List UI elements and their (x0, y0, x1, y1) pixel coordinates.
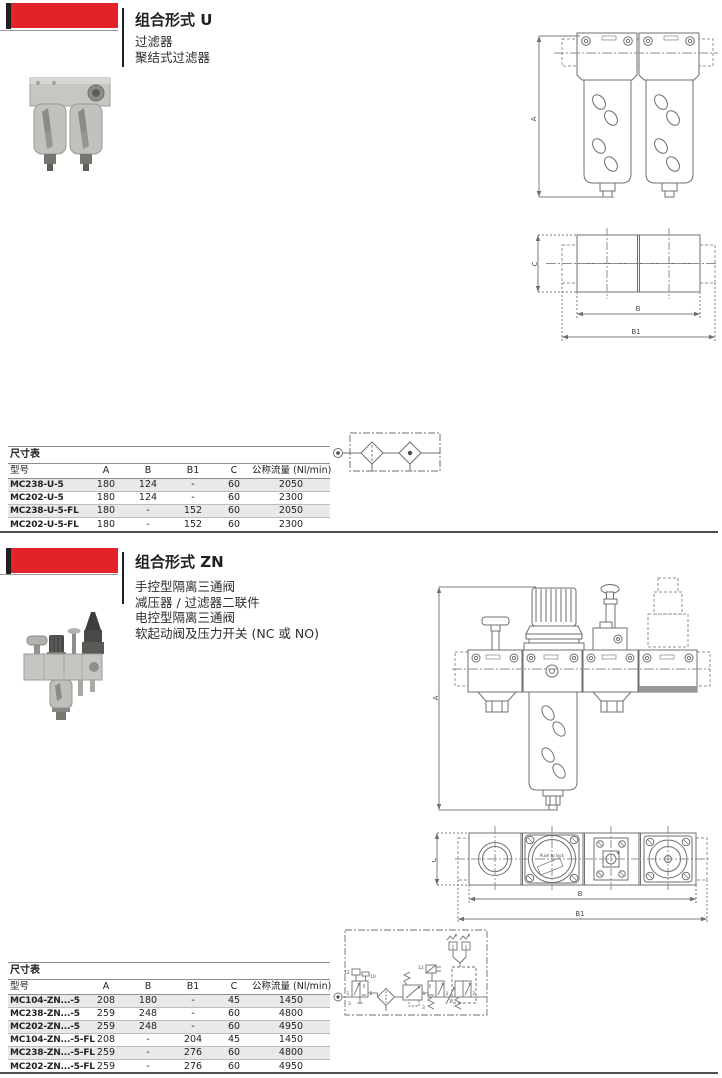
desc-line: 软起动阀及压力开关 (NC 或 NO) (135, 626, 319, 642)
b1-cell: - (170, 479, 216, 491)
section-u-description: 过滤器 聚结式过滤器 (135, 34, 210, 65)
flow-cell: 1450 (252, 995, 330, 1007)
section-zn-red-band (11, 548, 118, 573)
table-row: MC202-U-5 180 124 - 60 2300 (8, 492, 330, 505)
dim-label-a: A (530, 116, 538, 121)
col-header-flow: 公称流量 (Nl/min) (252, 464, 330, 478)
b1-cell: 276 (170, 1061, 216, 1073)
col-header-b: B (126, 980, 170, 994)
dim-label-b: B (578, 890, 583, 898)
dim-label-c: C (432, 857, 438, 862)
solenoid-pilot (593, 585, 627, 651)
port-label: 2 (446, 991, 449, 997)
b-cell: - (126, 505, 170, 517)
b1-cell: 204 (170, 1034, 216, 1046)
module-row (468, 650, 697, 692)
filter-unit (577, 33, 637, 197)
section-u-red-band (11, 3, 118, 28)
b-cell: - (126, 1047, 170, 1059)
filter-symbol (378, 989, 395, 1012)
dim-label-b1: B1 (575, 910, 584, 918)
port-label: 1 (347, 991, 350, 997)
c-cell: 60 (216, 1008, 252, 1020)
dimension-b: B (469, 885, 696, 903)
model-cell: MC104-ZN...-5-FL (8, 1034, 86, 1046)
table-row: MC202-U-5-FL 180 - 152 60 2300 (8, 518, 330, 531)
flow-cell: 4950 (252, 1021, 330, 1033)
b-cell: 248 (126, 1021, 170, 1033)
a-cell: 259 (86, 1061, 126, 1073)
table-header-row: 型号 A B B1 C 公称流量 (Nl/min) (8, 464, 330, 479)
section-u-divider (122, 8, 124, 67)
b-cell: 180 (126, 995, 170, 1007)
dimension-b: B (577, 292, 700, 318)
port-label: 2 (370, 991, 373, 997)
table-row: MC104-ZN...-5 208 180 - 45 1450 (8, 995, 330, 1008)
flow-cell: 2300 (252, 519, 330, 531)
table-header-row: 型号 A B B1 C 公称流量 (Nl/min) (8, 980, 330, 995)
b1-cell: - (170, 1008, 216, 1020)
table-row: MC202-ZN...-5 259 248 - 60 4950 (8, 1021, 330, 1034)
dimension-table-u: 尺寸表 型号 A B B1 C 公称流量 (Nl/min) MC238-U-5 … (8, 446, 330, 531)
a-cell: 259 (86, 1008, 126, 1020)
regulator-knob (524, 588, 584, 650)
schematic-zn: 12 10 1 2 3 12 1 2 3 (333, 925, 490, 1022)
table-row: MC238-U-5-FL 180 - 152 60 2050 (8, 505, 330, 518)
c-cell: 60 (216, 1047, 252, 1059)
flow-cell: 2300 (252, 492, 330, 504)
col-header-model: 型号 (8, 464, 86, 478)
section-u-bottom-rule (0, 531, 718, 533)
port-label: 10 (370, 974, 376, 980)
port-label: 3 (422, 1005, 425, 1011)
c-cell: 45 (216, 1034, 252, 1046)
c-cell: 45 (216, 995, 252, 1007)
model-cell: MC202-U-5 (8, 492, 86, 504)
soft-start-ghost (648, 578, 688, 647)
section-zn-band-underline (0, 574, 118, 575)
regulator-symbol (403, 972, 422, 1006)
b1-cell: 152 (170, 505, 216, 517)
bottom-fitting (478, 692, 516, 712)
coalescing-filter-symbol (399, 442, 421, 471)
table-row: MC238-U-5 180 124 - 60 2050 (8, 479, 330, 492)
port-label: 3 (348, 1001, 351, 1007)
flow-cell: 2050 (252, 505, 330, 517)
drawing-u-top-view: C B B1 (528, 226, 722, 352)
section-zn-description: 手控型隔离三通阀 减压器 / 过滤器二联件 电控型隔离三通阀 软起动阀及压力开关… (135, 579, 319, 641)
col-header-b1: B1 (170, 980, 216, 994)
col-header-c: C (216, 980, 252, 994)
desc-line: 手控型隔离三通阀 (135, 579, 319, 595)
col-header-a: A (86, 464, 126, 478)
a-cell: 180 (86, 505, 126, 517)
a-cell: 180 (86, 492, 126, 504)
col-header-b: B (126, 464, 170, 478)
section-zn-title: 组合形式 ZN (135, 551, 224, 572)
schematic-u (328, 422, 448, 480)
filter-symbol (361, 442, 383, 471)
model-cell: MC202-ZN...-5 (8, 1021, 86, 1033)
port-label: 1 (449, 999, 452, 1005)
dim-label-a: A (432, 695, 440, 700)
flow-cell: 1450 (252, 1034, 330, 1046)
section-zn-bottom-rule (0, 1072, 718, 1074)
port-label: 12 (344, 970, 350, 976)
desc-line: 减压器 / 过滤器二联件 (135, 595, 319, 611)
desc-line: 聚结式过滤器 (135, 50, 210, 66)
desc-line: 过滤器 (135, 34, 210, 50)
b-cell: - (126, 1061, 170, 1073)
model-cell: MC202-ZN...-5-FL (8, 1061, 86, 1073)
pressure-switch-symbols: 1 1 (447, 934, 470, 967)
b1-cell: - (170, 492, 216, 504)
a-cell: 208 (86, 1034, 126, 1046)
b1-cell: 276 (170, 1047, 216, 1059)
port-label: 1 (423, 991, 426, 997)
b-cell: - (126, 1034, 170, 1046)
flow-cell: 4950 (252, 1061, 330, 1073)
model-cell: MC238-U-5 (8, 479, 86, 491)
c-cell: 60 (216, 492, 252, 504)
flow-cell: 4800 (252, 1008, 330, 1020)
dim-label-b1: B1 (631, 328, 640, 336)
solenoid-valve-symbol: 12 1 2 3 (418, 965, 449, 1011)
a-cell: 208 (86, 995, 126, 1007)
table-row: MC104-ZN...-5-FL 208 - 204 45 1450 (8, 1034, 330, 1047)
filter-unit (639, 33, 699, 197)
product-photo-u (24, 70, 116, 178)
section-u-band-underline (0, 30, 118, 31)
table-caption: 尺寸表 (8, 962, 330, 980)
flow-cell: 2050 (252, 479, 330, 491)
col-header-flow: 公称流量 (Nl/min) (252, 980, 330, 994)
col-header-a: A (86, 980, 126, 994)
manual-valve-button (482, 617, 509, 650)
c-cell: 60 (216, 479, 252, 491)
manual-valve-symbol: 12 10 1 2 3 (344, 969, 376, 1007)
dim-label-b: B (636, 305, 641, 313)
a-cell: 180 (86, 519, 126, 531)
catalog-page: { "section_u": { "title": "组合形式 U", "des… (0, 0, 722, 1078)
model-cell: MC238-ZN...-5 (8, 1008, 86, 1020)
a-cell: 259 (86, 1021, 126, 1033)
model-cell: MC238-ZN...-5-FL (8, 1047, 86, 1059)
col-header-c: C (216, 464, 252, 478)
bottom-fitting (593, 692, 631, 712)
desc-line: 电控型隔离三通阀 (135, 610, 319, 626)
drawing-u-front-view: A (528, 20, 722, 222)
c-cell: 60 (216, 505, 252, 517)
section-zn-divider (122, 552, 124, 604)
b1-cell: - (170, 995, 216, 1007)
b-cell: - (126, 519, 170, 531)
a-cell: 259 (86, 1047, 126, 1059)
c-cell: 60 (216, 1061, 252, 1073)
port-label: 12 (418, 965, 424, 971)
model-cell: MC202-U-5-FL (8, 519, 86, 531)
table-caption: 尺寸表 (8, 446, 330, 464)
col-header-model: 型号 (8, 980, 86, 994)
photo-bowl-right (70, 104, 102, 171)
c-cell: 60 (216, 519, 252, 531)
b1-cell: - (170, 1021, 216, 1033)
port-label: 1 (452, 945, 455, 951)
soft-start-valve-symbol: 1 2 (446, 967, 476, 1009)
dim-label-c: C (531, 261, 539, 266)
b-cell: 248 (126, 1008, 170, 1020)
table-row: MC238-ZN...-5-FL 259 - 276 60 4800 (8, 1047, 330, 1060)
section-u-title: 组合形式 U (135, 9, 212, 30)
model-cell: MC238-U-5-FL (8, 505, 86, 517)
filter-bowl (529, 692, 577, 810)
drawing-zn-bottom-view: Push to lock C B (432, 824, 722, 926)
port-label: 1 (465, 945, 468, 951)
drawing-zn-front-view: A (432, 572, 722, 818)
port-label: 2 (473, 991, 476, 997)
table-row: MC238-ZN...-5 259 248 - 60 4800 (8, 1008, 330, 1021)
b-cell: 124 (126, 492, 170, 504)
col-header-b1: B1 (170, 464, 216, 478)
model-cell: MC104-ZN...-5 (8, 995, 86, 1007)
b1-cell: 152 (170, 519, 216, 531)
product-photo-zn (22, 608, 106, 720)
c-cell: 60 (216, 1021, 252, 1033)
a-cell: 180 (86, 479, 126, 491)
photo-bowl-left (34, 104, 66, 171)
b-cell: 124 (126, 479, 170, 491)
flow-cell: 4800 (252, 1047, 330, 1059)
dimension-table-zn: 尺寸表 型号 A B B1 C 公称流量 (Nl/min) MC104-ZN..… (8, 962, 330, 1073)
